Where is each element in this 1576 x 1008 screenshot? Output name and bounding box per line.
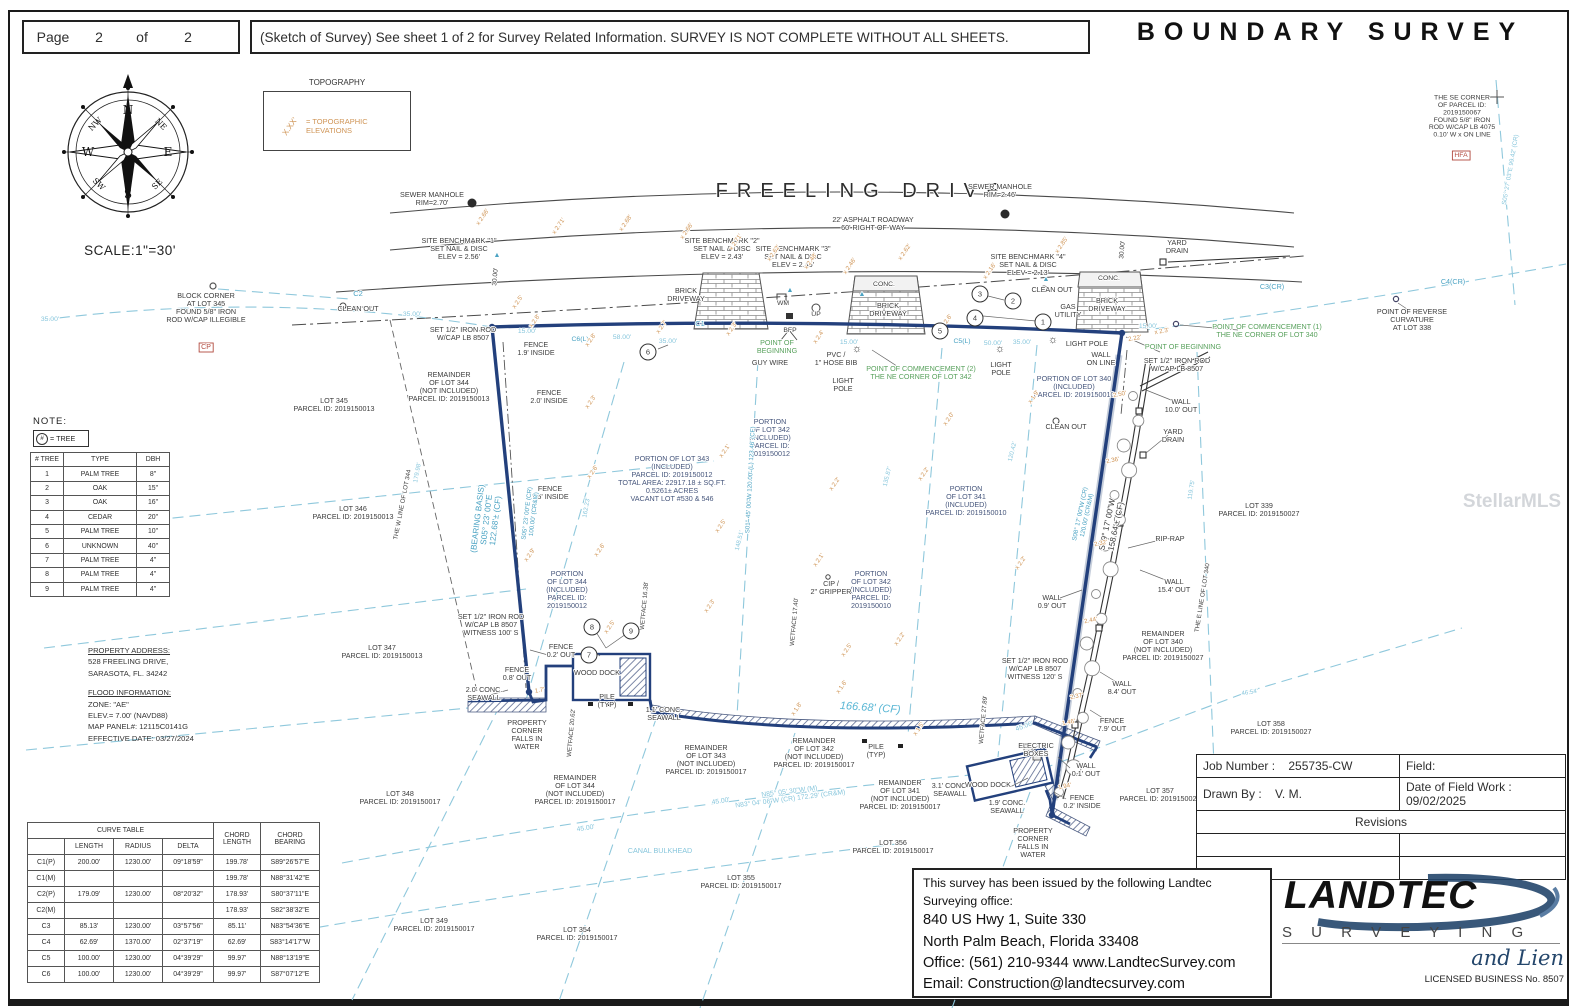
note-block: NOTE: # = TREE xyxy=(33,416,89,447)
drawing-label: CLEAN OUT xyxy=(337,304,379,313)
svg-text:5: 5 xyxy=(938,327,942,336)
drawn-by-value: V. M. xyxy=(1275,787,1302,801)
svg-text:4: 4 xyxy=(973,314,977,323)
drawing-label: x 2.71' xyxy=(551,217,567,236)
drawing-label: WETFACE 17.40' xyxy=(789,598,800,647)
text-line: 840 US Hwy 1, Suite 330 xyxy=(923,910,1261,931)
drawing-label: StellarMLS xyxy=(1463,491,1561,512)
svg-text:9: 9 xyxy=(629,627,633,636)
drawing-label: x 1.8' xyxy=(790,701,804,717)
drawing-label: LIGHT POLE xyxy=(1066,339,1108,348)
field-label: Field: xyxy=(1406,759,1435,773)
drawing-label: x 2.2' xyxy=(917,466,931,482)
property-address-lines: 528 FREELING DRIVE,SARASOTA, FL. 34242 xyxy=(88,656,194,679)
drawing-label: 2.22' xyxy=(1128,334,1142,343)
text-line: SARASOTA, FL. 34242 xyxy=(88,668,194,679)
drawing-label: POINT OFBEGINNING xyxy=(757,338,798,355)
drawing-label: WETFACE 16.38' xyxy=(639,582,650,631)
drawing-label: FENCE2.0' INSIDE xyxy=(530,388,568,405)
svg-text:6: 6 xyxy=(646,348,650,357)
drawing-label: PILE(TYP) xyxy=(867,742,886,759)
drawing-label: FREELING DRIVE xyxy=(716,180,1009,202)
drawing-label: WALL0.1' OUT xyxy=(1072,761,1101,778)
drawing-label: SITE BENCHMARK "1"SET NAIL & DISCELEV = … xyxy=(422,236,497,261)
drawing-label: 35.00' xyxy=(41,316,59,323)
topography-box: X.XX' = TOPOGRAPHIC ELEVATIONS xyxy=(263,91,411,151)
drawing-label: x 2.0' xyxy=(942,411,956,427)
text-line: ELEV.= 7.00' (NAVD88) xyxy=(88,710,194,721)
table-row: C6100.00'1230.00'04°39'29"99.97'S87°07'1… xyxy=(28,967,320,983)
drawing-label: BLOCK CORNERAT LOT 345FOUND 5/8" IRONROD… xyxy=(166,291,246,324)
drawing-label: LOT 349PARCEL ID: 2019150017 xyxy=(393,916,474,933)
svg-text:1: 1 xyxy=(1041,318,1045,327)
text-line: ZONE: "AE" xyxy=(88,699,194,710)
sheet-note: (Sketch of Survey) See sheet 1 of 2 for … xyxy=(260,30,1009,45)
drawing-label: 35.00' xyxy=(403,311,421,318)
drawing-label: C2 xyxy=(353,289,363,298)
drawing-label: CONC. xyxy=(873,281,895,288)
tree-marker: 9 xyxy=(623,623,639,639)
svg-text:7: 7 xyxy=(587,651,591,660)
drawing-label: C3(CR) xyxy=(1260,282,1284,291)
compass-rose: NESWNESESWNW xyxy=(62,74,194,218)
drawing-label: x 2.5' xyxy=(714,518,728,534)
drawing-label: x 2.66' xyxy=(475,208,491,227)
drawing-label: 1.94' xyxy=(1057,782,1071,792)
drawing-label: x 2.6' xyxy=(586,464,600,480)
field-work-date-label: Date of Field Work : xyxy=(1406,780,1512,794)
topo-symbol: X.XX' xyxy=(281,116,300,137)
drawing-label: ▲ xyxy=(494,252,501,259)
drawing-label: SET 1/2" IRON RODW/CAP LB 8507WITNESS 10… xyxy=(458,612,524,637)
drawing-label: WETFACE 20.62' xyxy=(566,709,577,758)
page-total: 2 xyxy=(168,29,208,45)
drawing-label: CIP /2" GRIPPER xyxy=(811,579,852,596)
drawing-label: REMAINDEROF LOT 344(NOT INCLUDED)PARCEL … xyxy=(408,370,489,403)
drawing-label: WOOD DOCK xyxy=(965,780,1011,789)
text-line: North Palm Beach, Florida 33408 xyxy=(923,932,1261,953)
drawing-label: LOT 348PARCEL ID: 2019150017 xyxy=(359,789,440,806)
of-label: of xyxy=(116,29,168,45)
drawing-label: x 2.46' xyxy=(842,257,858,276)
drawing-label: C1 xyxy=(695,319,705,328)
drawing-label: SET 1/2" IRON RODW/CAP LB 8507WITNESS 12… xyxy=(1002,656,1068,681)
drawing-label: LOT 346PARCEL ID: 2019150013 xyxy=(312,504,393,521)
revisions-label: Revisions xyxy=(1197,811,1566,834)
drawing-label: POINT OF COMMENCEMENT (1)THE NE CORNER O… xyxy=(1212,322,1322,339)
drawing-label: x 2.1' xyxy=(812,552,826,568)
drawing-label: 2.44' xyxy=(1083,616,1097,626)
drawing-label: ▲ xyxy=(859,291,866,298)
drawing-label: 46.54' xyxy=(1241,688,1259,698)
drawing-label: 162.23' xyxy=(581,497,591,518)
tree-marker: 2 xyxy=(1005,293,1021,309)
drawing-label: 45.00' xyxy=(576,824,595,834)
table-row: C1(M)199.78'N88°31'42"E xyxy=(28,871,320,887)
table-row: 4CEDAR20" xyxy=(31,510,170,524)
drawing-label: LOT 355PARCEL ID: 2019150017 xyxy=(700,873,781,890)
sheet-title: BOUNDARY SURVEY xyxy=(1098,18,1563,47)
drawing-label: SET 1/2" IRON RODW/CAP LB 8507 xyxy=(1144,356,1210,373)
drawing-label: 15.00' xyxy=(840,339,858,346)
drawing-label: 30.00' xyxy=(1118,241,1127,259)
table-row: C1(P)200.00'1230.00'09°18'59"199.78'S89°… xyxy=(28,855,320,871)
drawing-label: HFA xyxy=(1454,152,1468,159)
compass-cardinal: N xyxy=(123,103,134,117)
drawing-label: x 2.62' xyxy=(897,243,913,262)
job-info-table: Job Number : 255735-CW Field: Drawn By :… xyxy=(1196,754,1566,880)
drawing-label: WM xyxy=(777,300,789,307)
topo-meaning: = TOPOGRAPHIC ELEVATIONS xyxy=(306,117,410,135)
survey-sheet: NESWNESESWNW FREELING DRIVESEWER MANHOLE… xyxy=(0,0,1576,1008)
tree-marker: 3 xyxy=(972,286,988,302)
drawing-label: x 2.5' xyxy=(603,619,617,635)
drawing-label: PORTIONOF LOT 344(INCLUDED)PARCEL ID:201… xyxy=(546,569,588,610)
drawing-label: POINT OF REVERSECURVATUREAT LOT 338 xyxy=(1377,307,1447,332)
drawing-label: SITE BENCHMARK "2"SET NAIL & DISCELEV = … xyxy=(685,236,760,261)
drawing-label: CONC. xyxy=(1098,275,1120,282)
drawing-label: WALL15.4' OUT xyxy=(1158,577,1191,594)
compass-cardinal: W xyxy=(82,145,95,159)
svg-text:3: 3 xyxy=(978,290,982,299)
drawing-label: 30.00' xyxy=(491,268,500,286)
field-work-date-value: 09/02/2025 xyxy=(1406,794,1466,808)
compass-intercardinal: NE xyxy=(153,117,169,133)
drawing-label: RIP-RAP xyxy=(1155,534,1184,543)
table-row: C5100.00'1230.00'04°39'29"99.97'N88°13'1… xyxy=(28,951,320,967)
drawing-label: WALL8.4' OUT xyxy=(1108,679,1137,696)
drawing-label: x 2.68' xyxy=(618,214,634,233)
drawing-label: LOT 354PARCEL ID: 2019150017 xyxy=(536,925,617,942)
drawing-label: POINT OF COMMENCEMENT (2)THE NE CORNER O… xyxy=(866,364,976,381)
table-row xyxy=(1197,834,1566,857)
tree-marker: 7 xyxy=(581,647,597,663)
property-address-title: PROPERTY ADDRESS: xyxy=(88,645,194,656)
drawing-label: CP xyxy=(201,344,211,351)
table-row: C2(M)178.93'S82°38'32"E xyxy=(28,903,320,919)
table-row: 7PALM TREE4" xyxy=(31,553,170,567)
drawing-label: x 2.7' xyxy=(655,319,669,335)
drawing-label: S05° 23' 00"E (CR)100.00' (CR&M) xyxy=(520,487,540,541)
drawing-label: FENCE0.8' OUT xyxy=(503,665,532,682)
tree-marker: 5 xyxy=(932,323,948,339)
page-label: Page xyxy=(24,29,82,45)
drawing-label: 1.9' CONC.SEAWALL xyxy=(989,798,1026,815)
compass-intercardinal: SE xyxy=(150,177,164,191)
table-row: 8PALM TREE4" xyxy=(31,568,170,582)
drawing-label: WALLON LINE xyxy=(1087,350,1116,367)
svg-text:8: 8 xyxy=(590,623,594,632)
drawing-label: YARDDRAIN xyxy=(1166,238,1188,255)
drawing-label: 2.50' xyxy=(1112,390,1126,400)
drawing-label: 166.68' (CF) xyxy=(839,700,901,716)
drawing-label: x 2.3' xyxy=(1154,327,1170,336)
drawing-label: S01° 45' 00"W 120.00' (L) 123.46' (CF) xyxy=(744,426,757,533)
drawing-label: C5(L) xyxy=(954,338,971,345)
drawing-label: PORTION OF LOT 343(INCLUDED)PARCEL ID: 2… xyxy=(618,454,726,503)
drawing-label: REMAINDEROF LOT 340(NOT INCLUDED)PARCEL … xyxy=(1122,629,1203,662)
page-number-box: Page 2 of 2 xyxy=(22,20,240,54)
logo-name: LANDTEC xyxy=(1284,874,1477,918)
drawing-label: 35.00' xyxy=(1013,339,1031,346)
drawing-label: x 2.5' xyxy=(840,642,854,658)
drawing-label: x 2.4' xyxy=(812,329,826,345)
drawing-label: BRICKDRIVEWAY xyxy=(667,286,705,303)
drawing-label: FENCE0.2' OUT xyxy=(547,642,576,659)
drawing-label: LOT 345PARCEL ID: 2019150013 xyxy=(293,396,374,413)
drawing-label: PROPERTYCORNERFALLS INWATER xyxy=(1013,826,1053,859)
drawing-label: 179.98' xyxy=(412,462,423,483)
drawing-label: 58.00' xyxy=(613,334,631,341)
tree-key: # = TREE xyxy=(33,430,89,447)
drawing-label: 135.87' xyxy=(882,466,894,487)
landtec-logo: LANDTEC S U R V E Y I N G and Lien LICEN… xyxy=(1278,872,1566,998)
drawing-label: x 2.2' xyxy=(828,476,842,492)
drawing-label: FENCE7.9' OUT xyxy=(1098,716,1127,733)
table-row: C2(P)179.09'1230.00'08°20'32"178.93'S80°… xyxy=(28,887,320,903)
drawing-label: 148.51' xyxy=(734,530,746,551)
issuer-box: This survey has been issued by the follo… xyxy=(912,868,1272,998)
drawing-label: x 2.3' xyxy=(584,394,598,410)
drawing-label: x 2.5' xyxy=(511,294,525,310)
svg-text:2: 2 xyxy=(1011,297,1015,306)
drawing-label: THE SE CORNEROF PARCEL ID:2019150067FOUN… xyxy=(1429,94,1496,138)
drawing-label: PORTIONOF LOT 342(INCLUDED)PARCEL ID:201… xyxy=(850,569,892,610)
drawing-label: x 2.3' xyxy=(703,598,717,614)
table-row: 9PALM TREE4" xyxy=(31,582,170,596)
drawing-label: 1.1' CONC.SEAWALL xyxy=(646,705,683,722)
drawing-label: x 2.2' xyxy=(1014,555,1028,571)
property-info: PROPERTY ADDRESS: 528 FREELING DRIVE,SAR… xyxy=(88,645,194,744)
text-line: This survey has been issued by the follo… xyxy=(923,875,1261,910)
table-header-row: # TREETYPEDBH xyxy=(31,453,170,467)
drawing-label: LOT 358PARCEL ID: 2019150027 xyxy=(1230,719,1311,736)
drawing-label: LIGHTPOLE xyxy=(832,376,854,393)
text-line: Office: (561) 210-9344 www.LandtecSurvey… xyxy=(923,953,1261,974)
tree-marker: 8 xyxy=(584,619,600,635)
drawing-label: WALL0.9' OUT xyxy=(1038,593,1067,610)
drawing-label: ▲ xyxy=(1043,276,1050,283)
tree-table: # TREETYPEDBH1PALM TREE8"2OAK15"3OAK16"4… xyxy=(30,452,170,597)
drawing-label: LOT 356PARCEL ID: 2019150017 xyxy=(852,838,933,855)
drawing-label: REMAINDEROF LOT 343(NOT INCLUDED)PARCEL … xyxy=(665,743,746,776)
drawing-label: 2.0' CONC.SEAWALL xyxy=(466,685,503,702)
note-label: NOTE: xyxy=(33,416,89,427)
drawing-label: SEWER MANHOLERIM=2.70' xyxy=(400,190,464,207)
drawing-label: x 2.8' xyxy=(584,332,598,348)
tree-marker: 6 xyxy=(640,344,656,360)
drawing-label: N85° 05' 30"W (M)N83° 04' 06"W (CR) 172.… xyxy=(734,781,846,810)
drawing-label: ☼ xyxy=(1048,334,1058,346)
flood-info-lines: ZONE: "AE"ELEV.= 7.00' (NAVD88)MAP PANEL… xyxy=(88,699,194,745)
scale-label: SCALE:1"=30' xyxy=(55,243,205,258)
drawing-label: 3.1' CONC.SEAWALL xyxy=(932,781,969,798)
drawing-label: 2.36' xyxy=(1105,456,1119,466)
table-row: Job Number : 255735-CW Field: xyxy=(1197,755,1566,778)
drawing-label: FENCE0.2' INSIDE xyxy=(1063,793,1101,810)
drawing-label: PORTIONOF LOT 341(INCLUDED)PARCEL ID: 20… xyxy=(925,484,1006,517)
tree-marker: 4 xyxy=(967,310,983,326)
job-number-label: Job Number : xyxy=(1203,759,1275,773)
text-line: EFFECTIVE DATE: 03/27/2024 xyxy=(88,733,194,744)
tree-symbol: # xyxy=(36,433,48,445)
table-row: C385.13'1230.00'03°57'56"85.11'N83°54'36… xyxy=(28,919,320,935)
drawing-label: POINT OF BEGINNING xyxy=(1145,342,1222,351)
table-row: C462.69'1370.00'02°37'19"62.69'S83°14'17… xyxy=(28,935,320,951)
drawing-label: (BEARING BASIS)S05° 23' 00"E122.68'± (CF… xyxy=(469,484,504,556)
drawing-label: BFP xyxy=(783,327,797,334)
drawing-label: CLEAN OUT xyxy=(1031,285,1073,294)
drawing-label: x 2.1' xyxy=(718,443,732,459)
drawing-label: C4(CR) xyxy=(1441,277,1465,286)
drawing-label: 22' ASPHALT ROADWAY60' RIGHT-OF-WAY xyxy=(832,215,914,232)
drawing-label: REMAINDEROF LOT 341(NOT INCLUDED)PARCEL … xyxy=(859,778,940,811)
table-row: Revisions xyxy=(1197,811,1566,834)
drawing-label: x 2.6' xyxy=(593,542,607,558)
drawing-label: 35.00' xyxy=(659,338,677,345)
drawing-label: THE W LINE OF LOT 344 xyxy=(392,468,413,540)
drawing-label: x 2.9' xyxy=(523,547,537,563)
text-line: MAP PANEL#: 12115C0141G xyxy=(88,721,194,732)
drawing-label: CANAL BULKHEAD xyxy=(628,846,692,855)
logo-script: and Lien xyxy=(1471,946,1564,970)
drawing-label: REMAINDEROF LOT 344(NOT INCLUDED)PARCEL … xyxy=(534,773,615,806)
flood-info-title: FLOOD INFORMATION: xyxy=(88,687,194,698)
text-line: 528 FREELING DRIVE, xyxy=(88,656,194,667)
text-line: Email: Construction@landtecsurvey.com xyxy=(923,974,1261,995)
compass-cardinal: E xyxy=(164,145,173,159)
topography-legend: TOPOGRAPHY X.XX' = TOPOGRAPHIC ELEVATION… xyxy=(263,78,411,151)
drawing-label: REMAINDEROF LOT 342(NOT INCLUDED)PARCEL … xyxy=(773,736,854,769)
table-row: 1PALM TREE8" xyxy=(31,467,170,481)
drawing-label: 1.7' xyxy=(534,686,545,695)
table-row: 6UNKNOWN40" xyxy=(31,539,170,553)
logo-license: LICENSED BUSINESS No. 8507 xyxy=(1425,974,1564,985)
drawing-label: UP xyxy=(811,311,821,318)
drawing-label: PORTION OF LOT 340(INCLUDED)PARCEL ID: 2… xyxy=(1033,374,1114,399)
drawing-label: LIGHTPOLE xyxy=(990,360,1012,377)
drawing-label: LOT 347PARCEL ID: 2019150013 xyxy=(341,643,422,660)
drawing-label: CLEAN OUT xyxy=(1045,422,1087,431)
drawing-label: SET 1/2" IRON RODW/CAP LB 8507 xyxy=(430,325,496,342)
tree-meaning: = TREE xyxy=(50,434,75,443)
drawing-label: x 2.16' xyxy=(982,262,998,281)
table-row: 3OAK16" xyxy=(31,496,170,510)
logo-subtitle: S U R V E Y I N G xyxy=(1282,924,1560,944)
drawing-label: x 2.2' xyxy=(893,631,907,647)
tree-marker: 1 xyxy=(1035,314,1051,330)
drawing-label: 45.00' xyxy=(711,797,730,807)
table-row: Drawn By : V. M. Date of Field Work : 09… xyxy=(1197,778,1566,811)
table-row: 5PALM TREE10" xyxy=(31,524,170,538)
job-number-value: 255735-CW xyxy=(1288,759,1352,773)
drawing-label: FENCE1.9' INSIDE xyxy=(517,340,555,357)
drawing-label: THE E LINE OF LOT 340 xyxy=(1194,562,1212,632)
drawing-label: PILE(TYP) xyxy=(598,692,617,709)
topography-title: TOPOGRAPHY xyxy=(263,78,411,87)
drawn-by-label: Drawn By : xyxy=(1203,787,1262,801)
page-current: 2 xyxy=(82,29,116,45)
sheet-note-box: (Sketch of Survey) See sheet 1 of 2 for … xyxy=(250,20,1090,54)
drawing-label: 120.42' xyxy=(1007,441,1019,462)
drawing-label: PROPERTYCORNERFALLS INWATER xyxy=(507,718,547,751)
drawing-label: WOOD DOCK xyxy=(574,668,620,677)
drawing-label: 50.00' xyxy=(984,340,1002,347)
drawing-label: 119.75' xyxy=(1187,480,1197,501)
drawing-label: x 1.6' xyxy=(835,679,849,695)
table-row: 2OAK15" xyxy=(31,481,170,495)
curve-table: CURVE TABLECHORDLENGTHCHORDBEARINGLENGTH… xyxy=(27,822,320,983)
drawing-label: YARDDRAIN xyxy=(1162,427,1184,444)
table-header-row: CURVE TABLECHORDLENGTHCHORDBEARING xyxy=(28,823,320,839)
drawing-label: ▲ xyxy=(787,287,794,294)
drawing-label: GUY WIRE xyxy=(752,358,788,367)
drawing-label: LOT 357PARCEL ID: 2019150027 xyxy=(1119,786,1200,803)
compass-cardinal: S xyxy=(124,187,132,201)
drawing-label: LOT 339PARCEL ID: 2019150027 xyxy=(1218,501,1299,518)
drawing-label: ELECTRICBOXES xyxy=(1018,741,1054,758)
